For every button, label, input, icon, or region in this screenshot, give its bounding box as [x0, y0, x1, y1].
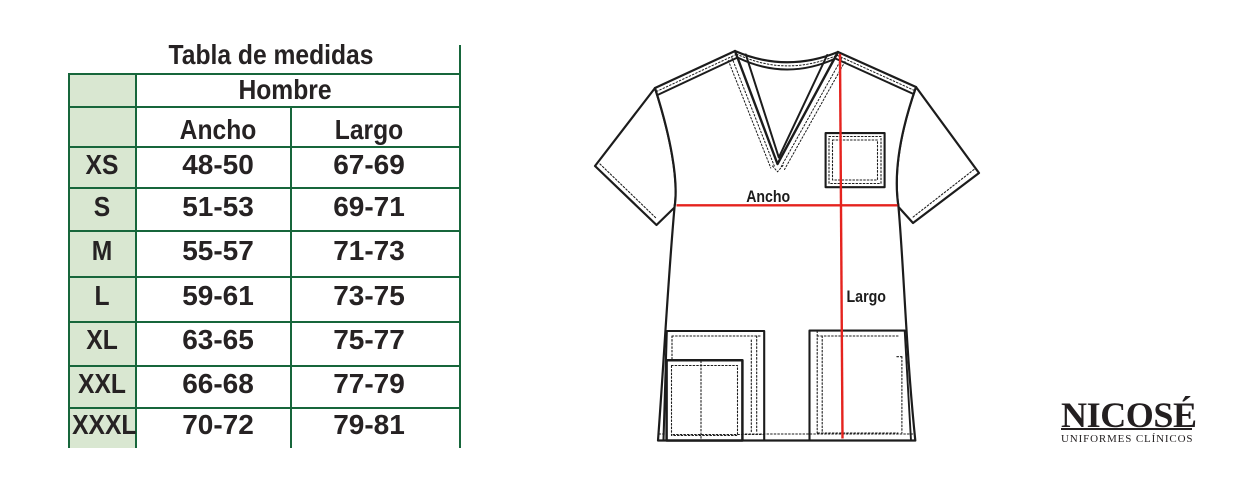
- svg-text:Ancho: Ancho: [746, 188, 790, 206]
- svg-text:Largo: Largo: [847, 288, 887, 306]
